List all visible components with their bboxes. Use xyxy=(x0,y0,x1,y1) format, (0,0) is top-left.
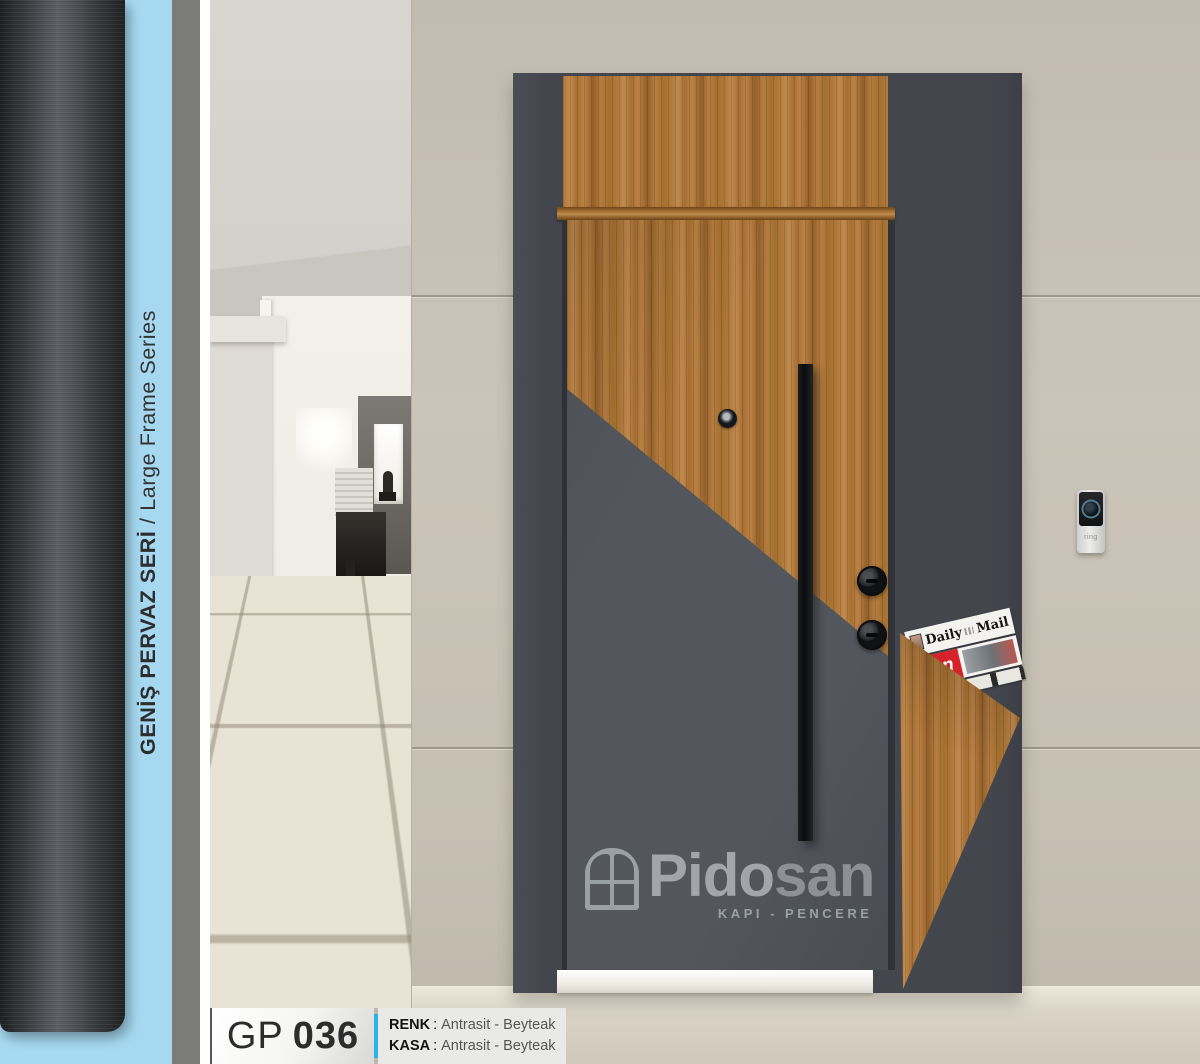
gray-divider-strip xyxy=(172,0,200,1064)
window-logo-panes xyxy=(590,854,634,905)
door-handle-bar xyxy=(798,364,813,841)
model-code: GP036 xyxy=(227,1015,359,1058)
masthead-word: Mail xyxy=(975,614,1010,636)
model-info-bar: GP036 RENK:Antrasit - Beyteak KASA:Antra… xyxy=(210,1008,566,1064)
video-doorbell: ring xyxy=(1077,490,1105,553)
brand-name: Pidosan xyxy=(648,848,874,903)
showroom-scene: Pidosan KAPI - PENCERE Daily Mail Sun xyxy=(210,0,1200,1064)
spec-kasa: KASA:Antrasit - Beyteak xyxy=(389,1037,566,1056)
dark-console xyxy=(336,512,386,576)
masthead-ornament xyxy=(964,626,974,635)
transom-wood-panel xyxy=(563,76,888,207)
series-title-band: GENİŞ PERVAZ SERİ / Large Frame Series xyxy=(125,0,172,1064)
white-divider-strip xyxy=(200,0,210,1064)
hallway-photo xyxy=(210,0,412,1008)
door-seam-right xyxy=(888,220,895,970)
doorbell-body: ring xyxy=(1079,526,1103,549)
masthead-word: Daily xyxy=(924,625,964,648)
door-threshold-sill xyxy=(557,970,873,993)
brand-wordmark: Pidosan KAPI - PENCERE xyxy=(648,848,874,921)
door-unit-gp036: Pidosan KAPI - PENCERE Daily Mail Sun xyxy=(513,73,1022,993)
doorbell-brand: ring xyxy=(1084,534,1098,541)
series-title-english: Large Frame Series xyxy=(136,310,160,511)
model-code-box: GP036 xyxy=(210,1008,374,1064)
peephole xyxy=(718,409,737,428)
doorbell-lens xyxy=(1084,502,1099,517)
transom-sill-molding xyxy=(557,207,895,220)
spec-renk: RENK:Antrasit - Beyteak xyxy=(389,1016,566,1035)
series-title-turkish: GENİŞ PERVAZ SERİ xyxy=(136,530,160,754)
pillar-capital xyxy=(210,316,286,342)
specs-box: RENK:Antrasit - Beyteak KASA:Antrasit - … xyxy=(378,1008,566,1064)
series-title-separator: / xyxy=(136,510,160,530)
door-leaf: Pidosan KAPI - PENCERE xyxy=(567,220,888,970)
brand-logo: Pidosan KAPI - PENCERE xyxy=(585,848,877,921)
doorbell-camera xyxy=(1079,492,1103,526)
upper-lock-cylinder xyxy=(857,566,887,596)
series-title: GENİŞ PERVAZ SERİ / Large Frame Series xyxy=(136,310,161,755)
wall-niche xyxy=(374,424,403,504)
window-logo-icon xyxy=(585,848,639,910)
catalog-page: GENİŞ PERVAZ SERİ / Large Frame Series xyxy=(0,0,1200,1064)
sconce-light-glow xyxy=(296,408,352,494)
lower-lock-cylinder xyxy=(857,620,887,650)
statue-silhouette xyxy=(383,471,393,501)
brand-tagline: KAPI - PENCERE xyxy=(718,906,872,921)
anthracite-material-swatch xyxy=(0,0,125,1032)
plant-pot xyxy=(255,652,317,718)
